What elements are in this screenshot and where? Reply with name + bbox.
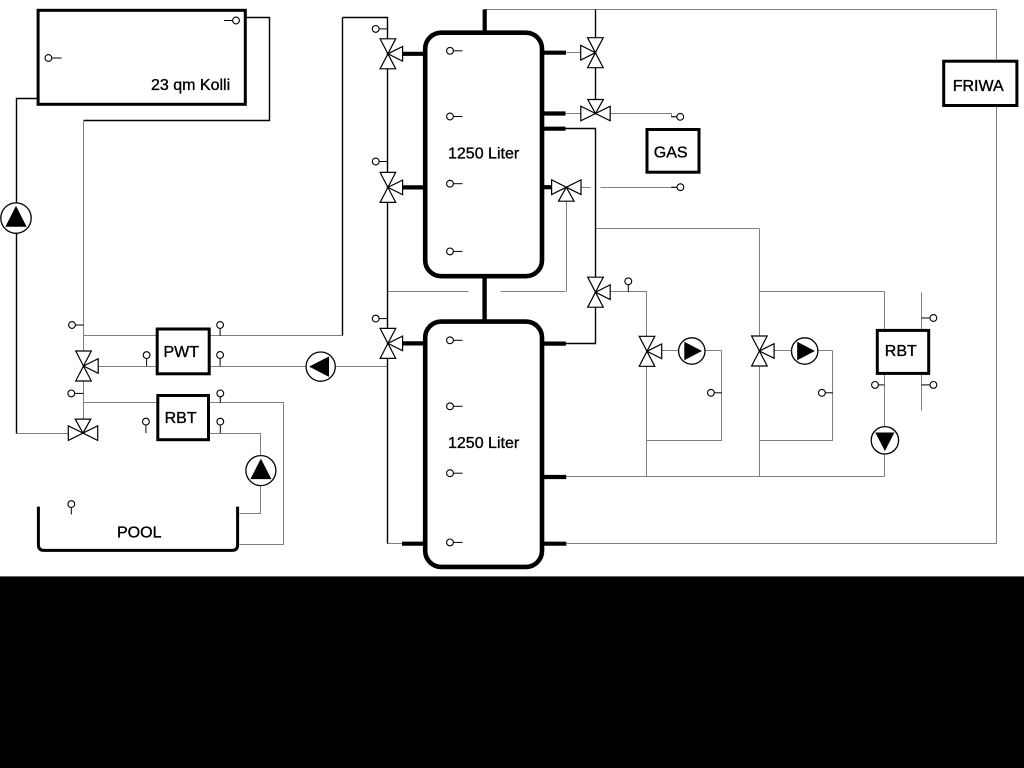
svg-text:23 qm Kolli: 23 qm Kolli (151, 77, 230, 94)
svg-text:RBT: RBT (165, 410, 197, 427)
svg-text:PWT: PWT (164, 344, 200, 361)
svg-text:POOL: POOL (117, 525, 162, 542)
svg-text:1250 Liter: 1250 Liter (448, 435, 520, 452)
svg-text:RBT: RBT (885, 343, 917, 360)
svg-text:1250 Liter: 1250 Liter (448, 145, 520, 162)
svg-text:GAS: GAS (654, 145, 688, 162)
svg-text:FRIWA: FRIWA (953, 78, 1004, 95)
